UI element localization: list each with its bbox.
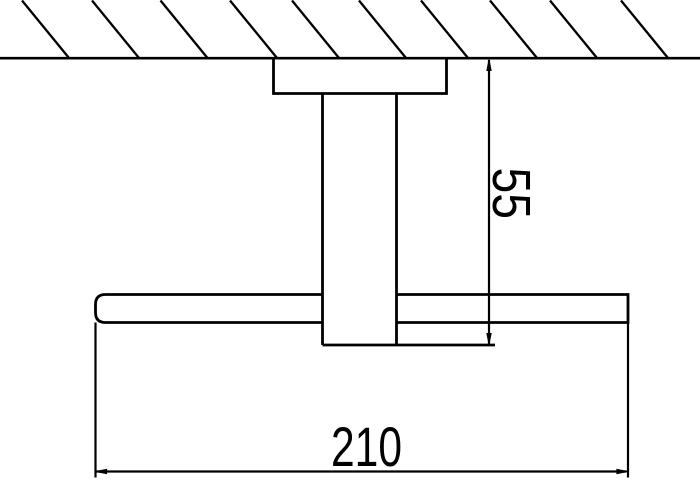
svg-text:55: 55 <box>481 168 541 220</box>
svg-text:210: 210 <box>331 416 402 478</box>
